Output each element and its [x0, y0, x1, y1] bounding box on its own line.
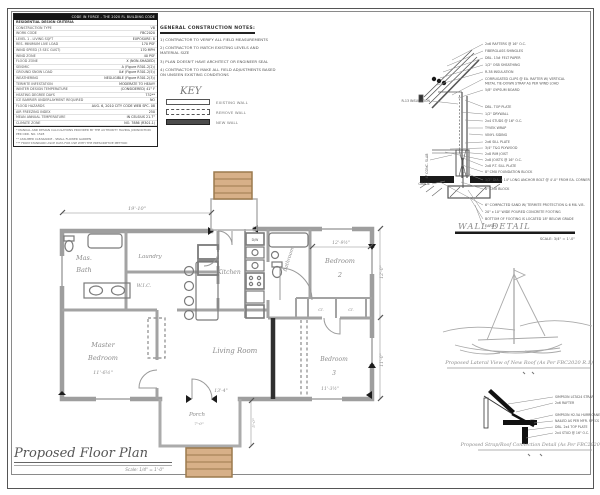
- fixtures: [64, 233, 308, 320]
- wall-detail-title-rule: [455, 232, 575, 235]
- wall-detail-label: DBL. TOP PLATE: [485, 105, 511, 109]
- bathtub-icon: [269, 233, 308, 247]
- room-label-closet: Cl.: [318, 307, 324, 312]
- dim-right-top: 12'-0": [379, 265, 385, 278]
- room-label-porch: Porch: [188, 412, 205, 418]
- wall-detail: 2x6 RAFTERS @ 16" O.C. FIBERGLASS SHINGL…: [402, 42, 591, 241]
- door-arc: [324, 318, 340, 334]
- wall-detail-label: 5/8" GYPSUM BOARD: [485, 88, 520, 92]
- drawing-sheet: CODE IN FORCE - THE 2020 FL BUILDING COD…: [0, 0, 600, 495]
- wall-detail-label: 8" CMU BLOCK: [485, 187, 510, 191]
- strap-detail-labels: SIMPSON LSTA24 STRAP 2x6 RAFTER SIMPSON …: [555, 395, 600, 435]
- washer-icon: [198, 245, 218, 259]
- strap-detail-label: SIMPSON H2.5A HURRICANE CLIP: [555, 413, 600, 417]
- room-label-laundry: Laundry: [137, 254, 162, 260]
- room-label-bedroom3: 3: [332, 370, 336, 377]
- window: [369, 338, 376, 364]
- room-label-master: Bedroom: [87, 354, 118, 362]
- strap-detail-label: 2x4 STUD @ 16" O.C.: [555, 431, 589, 435]
- toilet-icon: [65, 241, 73, 252]
- dim-porch: 7'-0": [194, 421, 204, 426]
- window: [369, 248, 376, 274]
- stoop: [211, 199, 257, 230]
- wall-detail-label: 2x8 P.T. SILL PLATE: [485, 164, 516, 168]
- lateral-sketch: Proposed Lateral View of New Roof (As Pe…: [443, 268, 593, 374]
- floor-plan: Mas. Bath Laundry W.I.C. Kitchen Bathroo…: [58, 172, 385, 477]
- wall-detail-label: DBL. 15# FELT PAPER: [485, 56, 521, 60]
- wall-detail-scale: SCALE: 3/4" = 1'-0": [540, 237, 575, 241]
- wall-detail-label: 8" CMU FOUNDATION BLOCK: [485, 170, 533, 174]
- wall-detail-label: 2x8 RIM JOIST: [485, 152, 509, 156]
- window: [96, 396, 130, 403]
- wall-detail-labels: 2x6 RAFTERS @ 16" O.C. FIBERGLASS SHINGL…: [402, 42, 591, 228]
- bathtub-icon: [88, 234, 122, 248]
- lateral-sketch-caption: Proposed Lateral View of New Roof (As Pe…: [444, 359, 593, 366]
- caption-ticks: [528, 454, 542, 456]
- strap-detail-caption: Proposed Strap/Roof Connection Detail (A…: [460, 441, 600, 448]
- wall-detail-label: BOTTOM OF FOOTING IS LOCATED 18" BELOW G…: [485, 217, 574, 221]
- dim-bedroom3: 11'-3½": [321, 385, 339, 392]
- wall-detail-label-left: R-13 INSULATION: [402, 99, 431, 103]
- strap-detail-label: NAILED AS PER MFR. SPECS: [555, 419, 599, 423]
- window: [322, 226, 352, 233]
- range-icon: [246, 273, 264, 289]
- strap-detail-label: SIMPSON LSTA24 STRAP: [555, 395, 594, 399]
- wall-detail-label: CORRUGATED CLIPS @ EA. RAFTER W/ VERTICA…: [485, 77, 565, 81]
- title-block: Proposed Floor Plan Scale: 1/4" = 1'-0": [14, 446, 174, 472]
- wall-detail-label: 1/2" DRYWALL: [485, 112, 509, 116]
- door-arc: [192, 379, 212, 399]
- room-label-living: Living Room: [212, 347, 258, 355]
- strap-detail-label: 2x6 RAFTER: [555, 401, 575, 405]
- dim-living: 13'-4": [214, 388, 227, 394]
- strap-detail: SIMPSON LSTA24 STRAP 2x6 RAFTER SIMPSON …: [460, 389, 600, 456]
- door-arc: [139, 370, 157, 388]
- counter-icon: [246, 291, 264, 303]
- window: [59, 256, 66, 286]
- door-jamb-marks: [58, 225, 376, 403]
- window: [312, 396, 342, 403]
- kitchen-sink-icon: [246, 260, 264, 271]
- sketch-linework: [443, 268, 592, 354]
- wall-detail-label: 2x6 SILL PLATE: [485, 140, 510, 144]
- sink-icon: [272, 252, 279, 259]
- dim-porch-side: 5'-0": [251, 418, 256, 428]
- wall-detail-label: VINYL SIDING: [485, 133, 508, 137]
- dim-right-bottom: 11'-0": [379, 353, 385, 366]
- caption-ticks: [523, 372, 534, 374]
- wall-detail-label: FIBERGLASS SHINGLES: [485, 49, 523, 53]
- wall-detail-label: METAL TIE-DOWN STRAP AS PER WIND LOAD: [485, 82, 559, 86]
- room-label-bedroom2: 2: [337, 271, 342, 279]
- strap-detail-leaders: [508, 397, 553, 438]
- sink-icon: [112, 286, 125, 295]
- wall-detail-label-left: 4" CONC. SLAB: [425, 153, 429, 179]
- wall-detail-label: TYVEK WRAP: [484, 126, 506, 130]
- room-label-kitchen: Kitchen: [216, 269, 241, 276]
- wall-detail-label: R-38 INSULATION: [485, 70, 514, 74]
- wall-detail-label: 20" x 10" WIDE POURED CONCRETE FOOTING: [485, 210, 561, 214]
- sheet-scale: Scale: 1/4" = 1'-0": [14, 467, 164, 472]
- sink-icon: [90, 286, 103, 295]
- room-label-bathroom: Bathroom: [282, 247, 296, 274]
- wall-detail-label: 2x8 JOISTS @ 16" O.C.: [485, 158, 522, 162]
- label-dishwasher: D/W: [252, 238, 260, 242]
- strap-detail-label: DBL. 2x4 TOP PLATE: [555, 425, 587, 429]
- wall-detail-label: 2x4 STUDS @ 16" O.C.: [485, 119, 522, 123]
- wall-detail-leaders: [430, 44, 483, 226]
- kitchen-sink-icon: [246, 247, 264, 258]
- wall-detail-label: 3/4" T&G PLYWOOD: [485, 146, 518, 150]
- strap-detail-linework: [484, 389, 537, 444]
- wall-detail-label-left: GRADE: [418, 182, 430, 186]
- dim-bedroom2: 12'-9½": [332, 239, 350, 246]
- removed-walls: [148, 318, 307, 395]
- stool-icon: [185, 297, 194, 306]
- wall-detail-label: 6" COMPACTED SAND W/ TERMITE PROTECTION …: [485, 203, 585, 207]
- dim-top: 19'-10": [128, 206, 146, 212]
- door-arc: [280, 268, 312, 300]
- sheet-title: Proposed Floor Plan: [14, 446, 174, 461]
- wall-detail-label: 2x6 RAFTERS @ 16" O.C.: [485, 42, 526, 46]
- stool-icon: [185, 311, 194, 320]
- vanity-counter-icon: [84, 283, 130, 298]
- drawing-canvas: Mas. Bath Laundry W.I.C. Kitchen Bathroo…: [0, 0, 600, 495]
- stool-icon: [185, 282, 194, 291]
- wall-detail-title: WALL DETAIL: [458, 222, 531, 232]
- room-label-mas-bath: Mas.: [75, 254, 92, 262]
- room-label-wic: W.I.C.: [137, 283, 152, 289]
- room-label-bedroom3: Bedroom: [319, 356, 348, 363]
- wall-detail-label: 1/2" DIA. x 14" LONG ANCHOR BOLT @ 4'-0"…: [485, 178, 590, 182]
- porch-structure: [160, 172, 257, 477]
- title-underline: [14, 462, 172, 466]
- dim-master: 11'-6½": [93, 369, 113, 376]
- room-label-closet: Cl.: [348, 307, 354, 312]
- door-arc: [218, 231, 232, 245]
- wall-detail-linework: [419, 50, 490, 198]
- room-label-bedroom2: Bedroom: [324, 257, 355, 265]
- room-label-mas-bath: Bath: [75, 266, 91, 274]
- room-label-master: Master: [90, 341, 115, 349]
- wall-detail-label: 1/2" OSB SHEATHING: [485, 63, 520, 67]
